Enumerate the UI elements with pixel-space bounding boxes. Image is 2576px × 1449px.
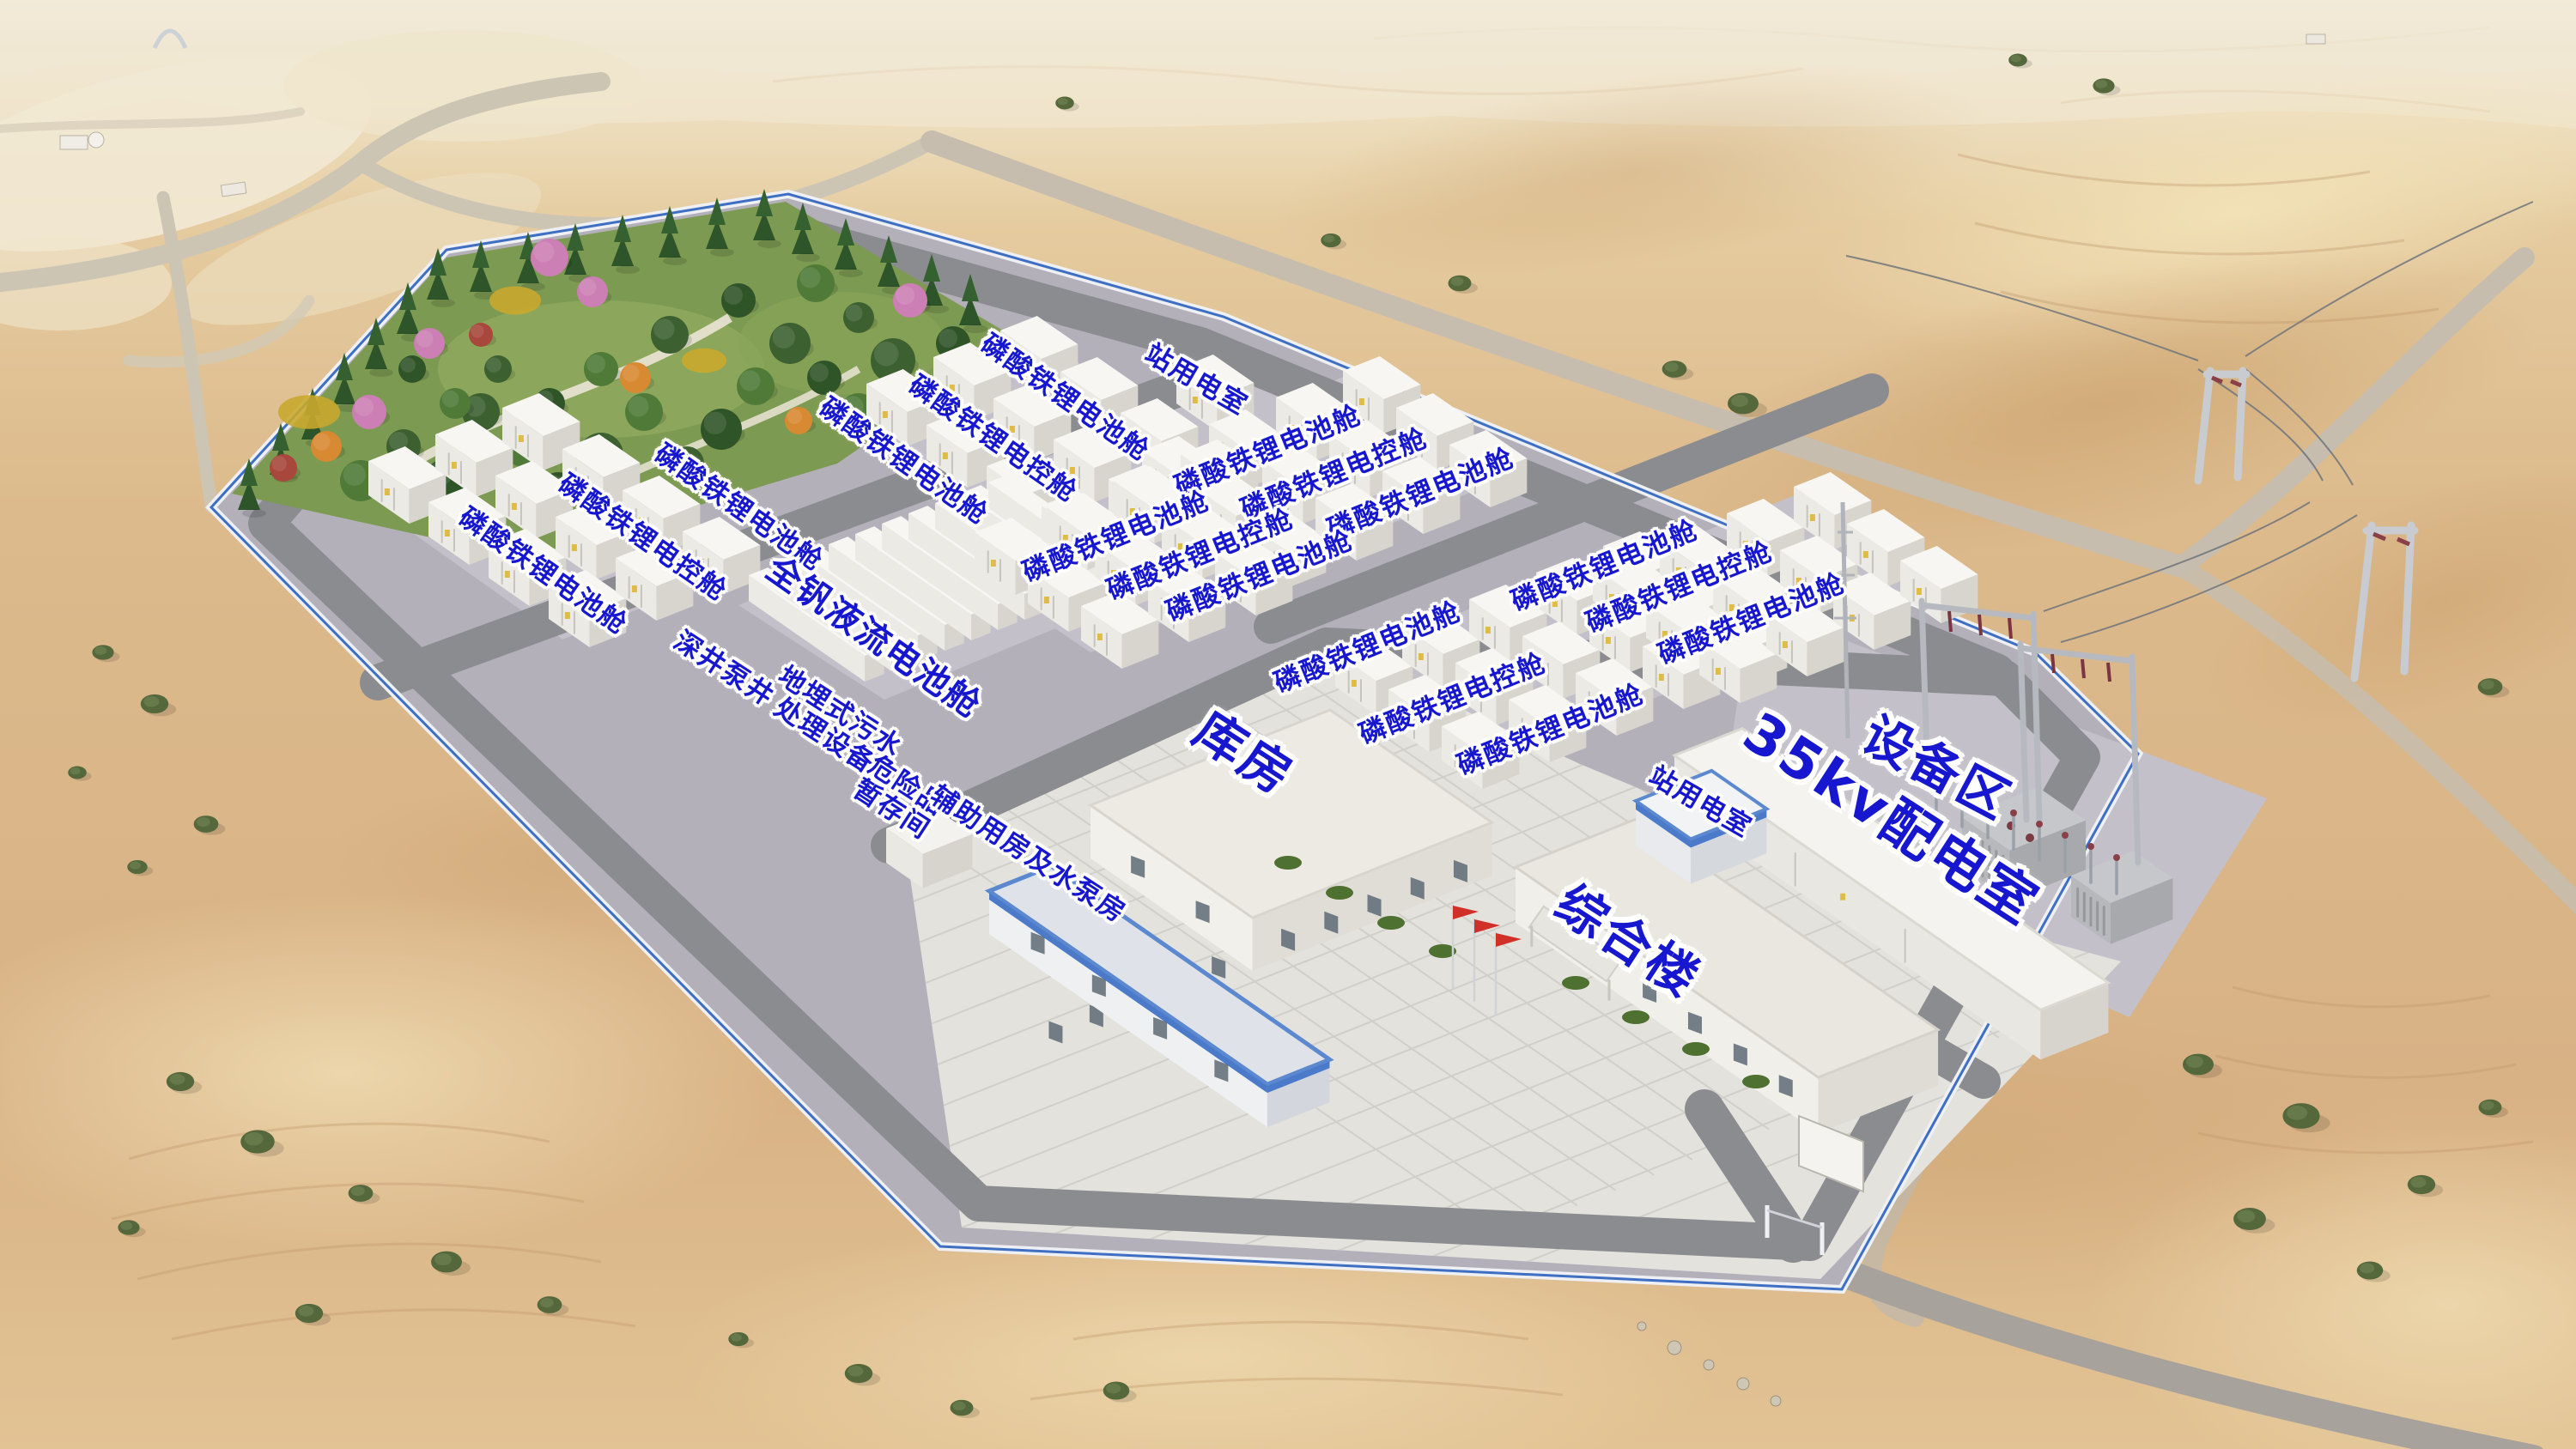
lfp-battery-cabin-label: 磷酸铁锂电池舱 <box>1271 597 1466 699</box>
site-annotations: 磷酸铁锂电池舱磷酸铁锂电控舱磷酸铁锂电池舱磷酸铁锂电池舱磷酸铁锂电控舱磷酸铁锂电… <box>0 0 2576 1449</box>
auxiliary-pump-house-label: 辅助用房及水泵房 <box>925 781 1131 929</box>
station-power-room-label: 站用电室 <box>1643 762 1756 844</box>
warehouse-label: 库房 <box>1185 702 1303 805</box>
complex-building-label: 综合楼 <box>1546 876 1710 1008</box>
aerial-site-rendering: 磷酸铁锂电池舱磷酸铁锂电控舱磷酸铁锂电池舱磷酸铁锂电池舱磷酸铁锂电控舱磷酸铁锂电… <box>0 0 2576 1449</box>
station-power-room-label: 站用电室 <box>1139 339 1252 421</box>
